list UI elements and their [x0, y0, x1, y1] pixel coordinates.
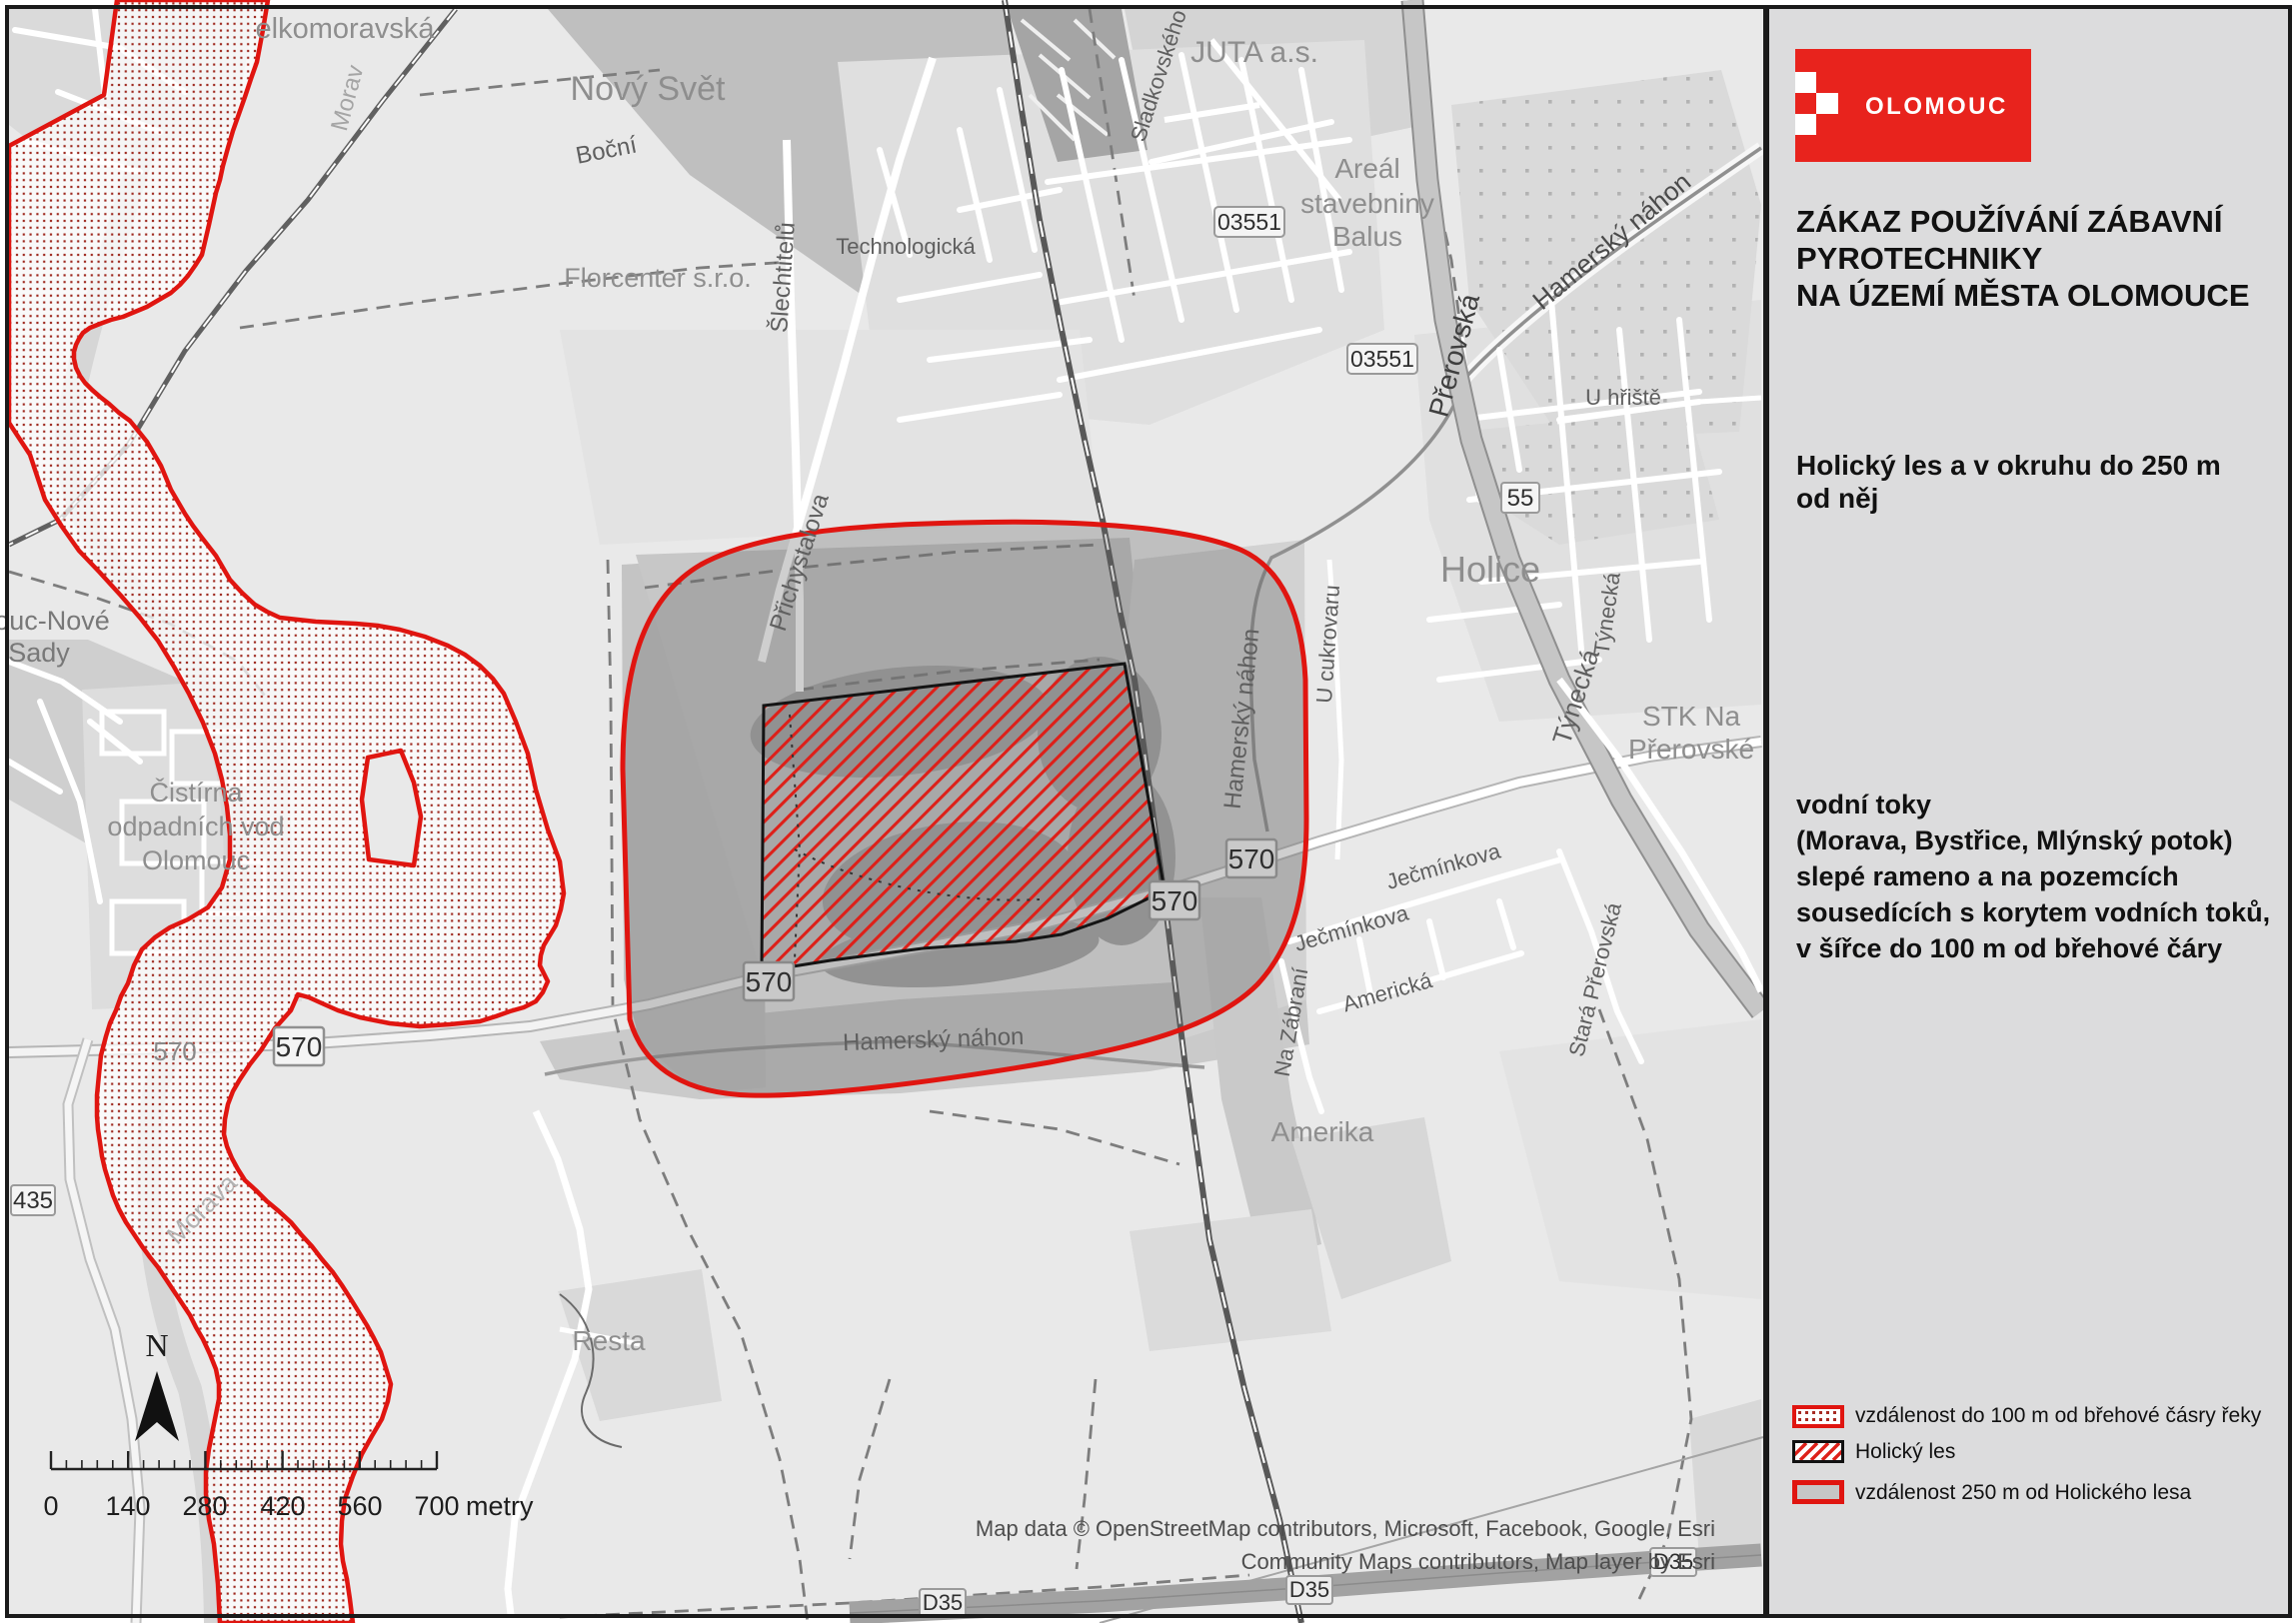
- svg-text:elkomoravská: elkomoravská: [256, 13, 436, 45]
- svg-text:Florcenter s.r.o.: Florcenter s.r.o.: [564, 263, 752, 293]
- svg-text:280: 280: [182, 1491, 227, 1521]
- svg-text:420: 420: [260, 1491, 305, 1521]
- svg-text:U hřiště: U hřiště: [1585, 385, 1661, 410]
- svg-text:Olomouc: Olomouc: [142, 845, 250, 875]
- svg-text:435: 435: [13, 1187, 53, 1214]
- svg-text:Balus: Balus: [1332, 221, 1402, 252]
- svg-text:STK Na: STK Na: [1642, 701, 1740, 732]
- svg-text:JUTA a.s.: JUTA a.s.: [1190, 36, 1318, 69]
- svg-text:Map data © OpenStreetMap contr: Map data © OpenStreetMap contributors, M…: [976, 1516, 1715, 1541]
- svg-text:700: 700: [414, 1491, 459, 1521]
- svg-text:Community Maps contributors, M: Community Maps contributors, Map layer b…: [1241, 1549, 1715, 1574]
- svg-text:55: 55: [1507, 485, 1534, 512]
- svg-text:570: 570: [276, 1031, 323, 1062]
- svg-text:Přerovské: Přerovské: [1628, 734, 1754, 765]
- svg-text:140: 140: [105, 1491, 150, 1521]
- svg-text:D35: D35: [923, 1590, 963, 1615]
- svg-text:570: 570: [1228, 843, 1275, 874]
- svg-text:Čistírna: Čistírna: [149, 777, 243, 808]
- svg-text:03551: 03551: [1217, 209, 1281, 235]
- svg-text:Nový Svět: Nový Svět: [571, 70, 726, 108]
- svg-text:Holice: Holice: [1440, 549, 1540, 590]
- svg-text:D35: D35: [1289, 1577, 1329, 1602]
- svg-text:570: 570: [746, 966, 793, 997]
- svg-text:03551: 03551: [1350, 346, 1414, 372]
- svg-text:Resta: Resta: [572, 1325, 646, 1356]
- svg-text:570: 570: [1151, 885, 1198, 916]
- svg-text:metry: metry: [466, 1491, 534, 1521]
- svg-text:570: 570: [153, 1036, 196, 1066]
- svg-text:N: N: [145, 1327, 168, 1363]
- svg-text:stavebniny: stavebniny: [1300, 188, 1434, 219]
- svg-text:Technologická: Technologická: [836, 234, 976, 259]
- svg-text:560: 560: [337, 1491, 382, 1521]
- svg-text:ouc-Nové: ouc-Nové: [0, 606, 110, 636]
- svg-text:Sady: Sady: [8, 638, 70, 668]
- svg-text:Amerika: Amerika: [1271, 1116, 1374, 1147]
- svg-text:Areál: Areál: [1334, 153, 1399, 184]
- svg-text:odpadních vod: odpadních vod: [107, 811, 284, 841]
- svg-text:0: 0: [43, 1491, 58, 1521]
